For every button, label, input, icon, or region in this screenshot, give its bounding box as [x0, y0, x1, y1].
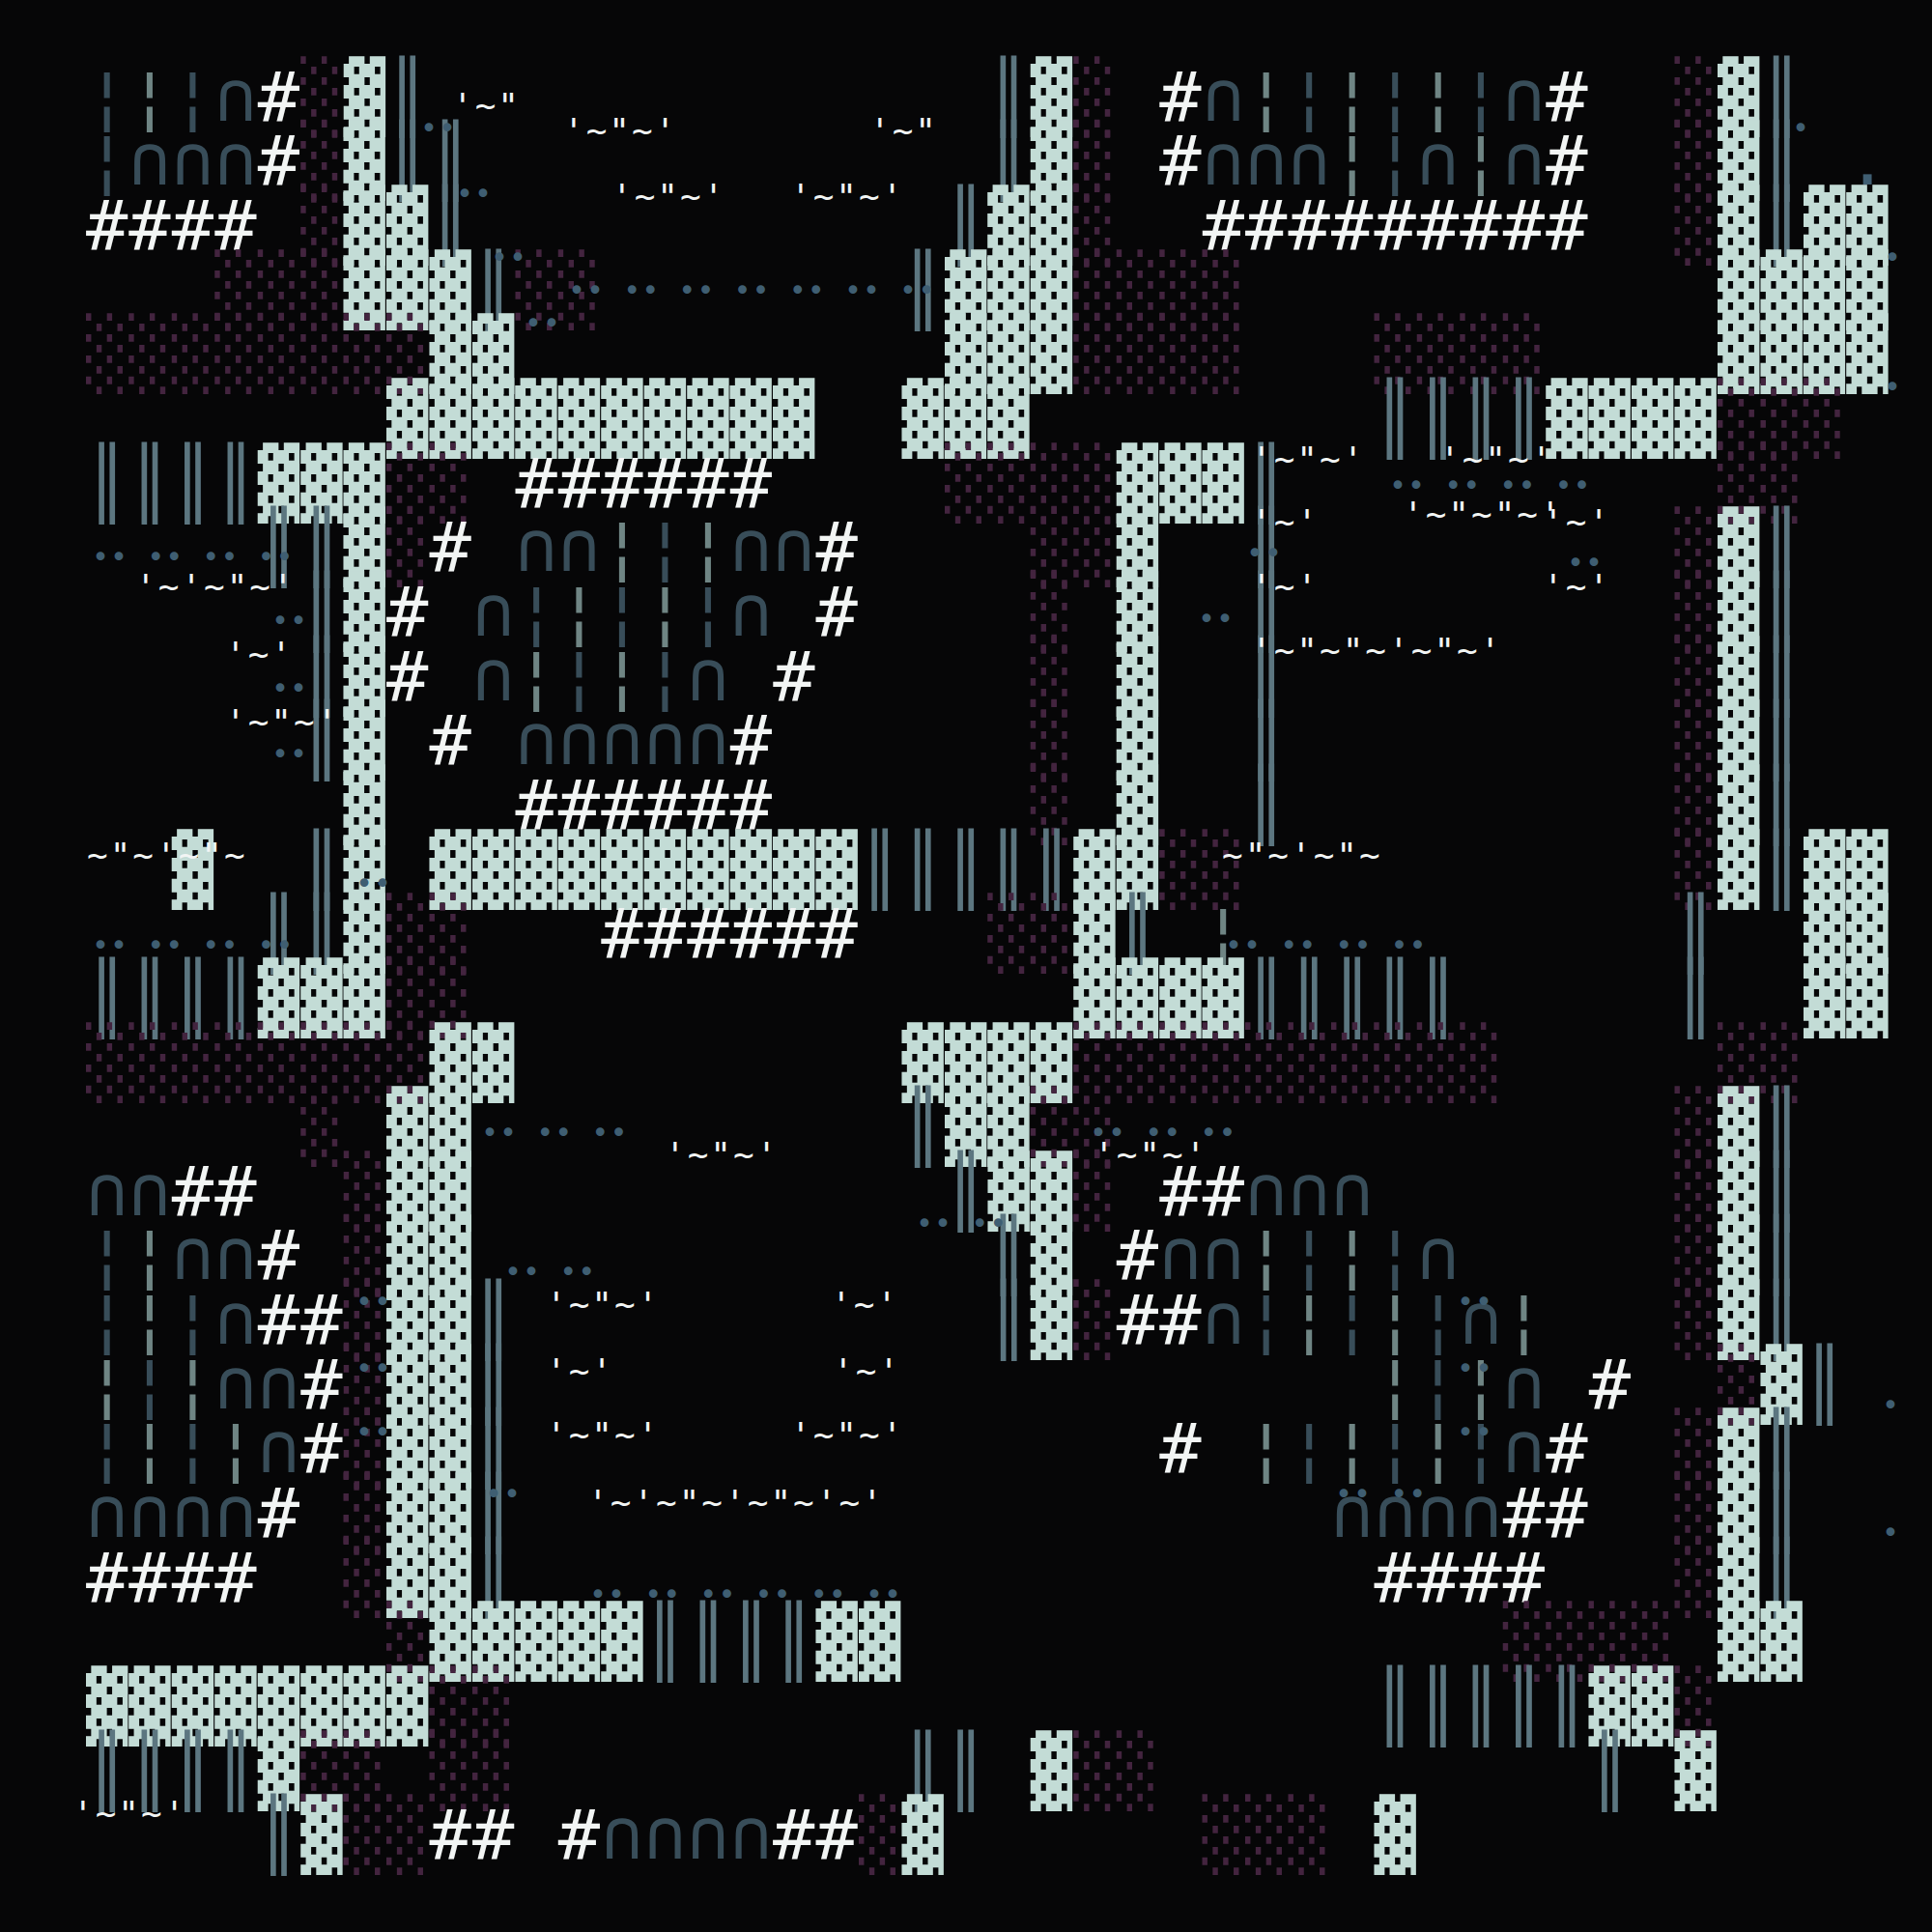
tilde-motif: '~"~' — [1251, 442, 1365, 477]
tilde-motif: '~"~' — [72, 1797, 186, 1832]
dot-pair-motif: •• — [1246, 539, 1283, 568]
tilde-motif: '~"~' — [225, 705, 339, 740]
dot-pair-motif: •• — [525, 309, 561, 338]
grid-row: ▓▓▓▓▓▓▓▓░░ ║║║║║▓▓░ — [0, 1674, 1932, 1739]
tilde-motif: '~' — [831, 1288, 899, 1322]
dot-pair-motif: •• — [271, 607, 308, 636]
dot-pair-motif: •• — [1457, 1288, 1493, 1317]
tilde-motif: '~'~"~'~"~'~' — [587, 1486, 885, 1520]
tilde-motif: '~"~' — [546, 1288, 660, 1322]
tilde-motif: '~" — [869, 114, 938, 149]
tilde-motif: '~"~' — [790, 1418, 904, 1453]
tilde-motif: ~"~'~"~ — [87, 838, 247, 873]
tilde-motif: '~' — [1251, 570, 1320, 605]
tilde-motif: '~' — [833, 1354, 901, 1389]
dot-pair-motif: •• •• •• — [1090, 1119, 1237, 1148]
dot-pair-motif: •• •• — [1335, 1480, 1427, 1509]
tilde-motif: '~"~' — [790, 180, 904, 214]
ascii-art-canvas: ¦¦¦∩#░▓║ ║▓░ #∩¦¦¦¦¦¦∩# ░▓║ ¦∩∩∩#░▓║║ ║▓… — [0, 0, 1932, 1932]
grid-row: ▓▓▓▓▓▓▓▓▓▓ ▓▓▓ ║║║║▓▓▓▓░░░ — [0, 386, 1932, 451]
tilde-motif: '~' — [546, 1354, 614, 1389]
grid-row: ░░░▓▓▓║░░ ║▓▓▓░░░░ ▓▓▓▓ — [0, 258, 1932, 323]
tilde-motif: '~"~' — [563, 114, 677, 149]
tilde-motif: '~"~"~'~"~' — [1251, 634, 1502, 668]
grid-row: ¦¦¦∩##░▓▓║ ║▓░##∩¦¦¦¦¦∩¦ ░▓║ — [0, 1288, 1932, 1352]
dot-pair-motif: •• •• •• •• — [92, 931, 295, 960]
dot-pair-motif: •• — [456, 180, 493, 209]
dot-pair-motif: • — [1882, 1519, 1900, 1548]
dot-pair-motif: •• •• •• •• — [1389, 471, 1592, 500]
tilde-motif: '~" — [452, 89, 521, 124]
grid-row: ░░░░░░░░▓▓ ▓▓▓░░░░ ░░░░ ▓▓▓▓ — [0, 322, 1932, 386]
tilde-motif: '~' — [1543, 505, 1611, 540]
dot-pair-motif: •• — [1457, 1354, 1493, 1383]
grid-row: ¦∩∩∩#░▓║║ ║▓░ #∩∩∩¦¦∩¦∩# ░▓║ . — [0, 128, 1932, 193]
tilde-motif: '~'~"~' — [135, 570, 296, 605]
grid-row — [0, 0, 1932, 65]
tilde-motif: '~' — [1251, 505, 1320, 540]
dot-pair-motif: • — [1882, 1391, 1900, 1420]
dot-pair-motif: •• — [271, 674, 308, 703]
dot-pair-motif: •• — [355, 1354, 392, 1383]
tilde-motif: '~"~' — [611, 180, 725, 214]
dot-pair-motif: •• •• — [916, 1209, 1008, 1238]
dot-pair-motif: •• •• •• •• •• •• — [589, 1580, 902, 1609]
dot-pair-motif: • — [1792, 114, 1810, 143]
dot-pair-motif: •• — [1198, 605, 1235, 634]
grid-row: ░ ▓▓ ║▓▓░░ ░▓║ — [0, 1094, 1932, 1159]
grid-row: #### ░▓▓║ ║▓▓░ ######### ░▓║▓▓ — [0, 193, 1932, 258]
grid-row — [0, 1867, 1932, 1932]
grid-row: ∩∩∩∩# ░▓▓║ ∩∩∩∩## ░▓║ — [0, 1481, 1932, 1546]
dot-pair-motif: •• — [355, 869, 392, 898]
tilde-motif: '~"~' — [665, 1138, 779, 1173]
dot-pair-motif: •• — [491, 243, 527, 272]
dot-pair-motif: •• — [1567, 549, 1604, 578]
grid-row: ▓ ###### ░ ▓ ║ ░▓║ — [0, 773, 1932, 838]
dot-pair-motif: • — [1884, 373, 1902, 402]
dot-pair-motif: •• — [485, 1480, 522, 1509]
grid-row: ║▓░░## #∩∩∩∩##░▓ ░░░ ▓ — [0, 1803, 1932, 1867]
tilde-motif: '~"~' — [546, 1418, 660, 1453]
dot-pair-motif: •• — [420, 114, 457, 143]
dot-pair-motif: •• •• •• •• •• •• •• — [568, 276, 936, 305]
dot-pair-motif: •• — [355, 1418, 392, 1447]
dot-pair-motif: •• •• •• •• — [1225, 931, 1428, 960]
dot-pair-motif: •• — [271, 740, 308, 769]
dot-pair-motif: •• — [355, 1288, 392, 1317]
tilde-motif: '~' — [225, 638, 294, 672]
dot-pair-motif: • — [1884, 243, 1902, 272]
tilde-motif: '~"~"~' — [1403, 497, 1563, 532]
dot-pair-motif: •• •• — [504, 1258, 596, 1287]
dot-pair-motif: •• — [1457, 1418, 1493, 1447]
tilde-motif: ~"~'~"~ — [1222, 838, 1382, 873]
glyph-grid: ¦¦¦∩#░▓║ ║▓░ #∩¦¦¦¦¦¦∩# ░▓║ ¦∩∩∩#░▓║║ ║▓… — [0, 0, 1932, 1932]
grid-row: ║║║║▓▓▓░░ ▓▓▓▓║║║║║ ║ ▓▓ — [0, 966, 1932, 1031]
dot-pair-motif: •• •• •• •• — [92, 543, 295, 572]
dot-pair-motif: •• •• •• — [481, 1119, 629, 1148]
